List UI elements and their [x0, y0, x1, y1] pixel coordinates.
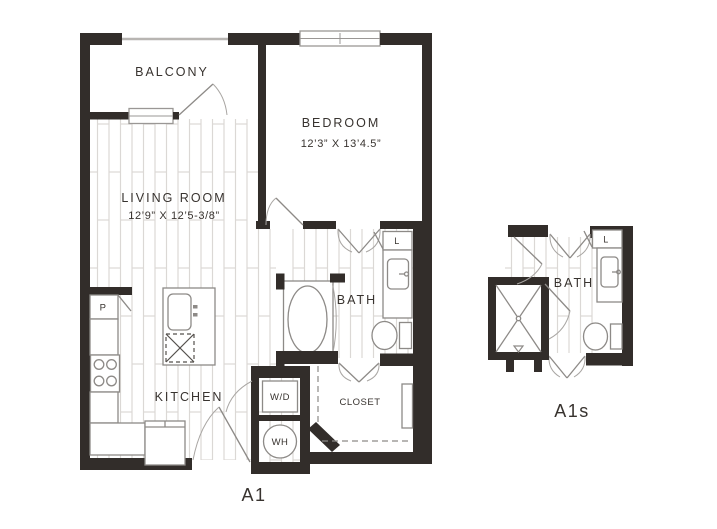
utility-left-wall	[251, 366, 259, 474]
living-room-label: LIVING ROOM	[121, 191, 226, 205]
linen-label: L	[394, 236, 400, 246]
island-faucet	[193, 305, 198, 309]
bedroom-divider-wall	[258, 43, 266, 229]
floor-plan-a1: BALCONY BEDROOM 12’3” X 13’4.5” LIVING R…	[80, 31, 432, 505]
bedroom-divider-end-cap	[256, 221, 270, 229]
small-bath-label: BATH	[554, 276, 594, 290]
kitchen-label: KITCHEN	[155, 390, 224, 404]
shower-drain	[516, 316, 520, 320]
closet-label: CLOSET	[339, 397, 380, 408]
toilet-tank	[400, 323, 412, 349]
bedroom-dimensions: 12’3” X 13’4.5”	[301, 138, 382, 150]
floor-plan-page: BALCONY BEDROOM 12’3” X 13’4.5” LIVING R…	[0, 0, 717, 529]
small-top-wall-left	[508, 225, 548, 237]
bath-wall-cap	[330, 274, 345, 283]
floor-plan-canvas: BALCONY BEDROOM 12’3” X 13’4.5” LIVING R…	[0, 0, 717, 529]
plan-name-a1s: A1s	[554, 401, 590, 421]
pantry-top-wall	[90, 287, 132, 295]
exterior-wall-left	[80, 33, 90, 470]
balcony-door-arc	[213, 84, 227, 115]
plan-name-a1: A1	[241, 485, 266, 505]
small-toilet	[584, 323, 623, 350]
pantry-label: P	[100, 303, 107, 314]
door-leaf	[567, 356, 585, 378]
shower-wall-stub	[506, 360, 514, 372]
door-leaf	[549, 356, 567, 378]
bedroom-wall-segment	[303, 221, 336, 229]
toilet-bowl	[372, 322, 397, 350]
closet-top-wall	[380, 354, 422, 367]
bedroom-label: BEDROOM	[302, 116, 381, 130]
door-leaf	[339, 363, 359, 382]
kitchen-island	[163, 288, 215, 365]
balcony-wall-segment	[90, 112, 129, 120]
utility-divider-wall	[259, 415, 300, 421]
floor-plan-a1s: BATH L A1s	[488, 225, 633, 421]
bath-sink	[388, 259, 409, 289]
bathtub	[284, 281, 337, 358]
exterior-wall-right-inner	[413, 228, 422, 464]
balcony-door-leaf	[179, 84, 213, 115]
small-bottom-door	[549, 356, 585, 378]
exterior-wall-bottom-right	[310, 452, 432, 464]
bedroom-door-leaf	[276, 198, 303, 225]
small-right-wall	[622, 226, 633, 366]
toilet-tank	[611, 324, 623, 349]
water-heater-label: WH	[272, 437, 289, 448]
island-sink	[168, 294, 191, 330]
exterior-wall-right	[422, 33, 432, 464]
island-faucet-handle	[193, 313, 198, 317]
balcony-wall-stub	[173, 112, 179, 120]
closet-angled-wall	[308, 422, 340, 452]
small-bottom-wall	[586, 353, 633, 366]
toilet-bowl	[584, 323, 608, 350]
washer-dryer-label: W/D	[270, 392, 290, 403]
bath-label: BATH	[337, 293, 377, 307]
kitchen-counter-upper	[90, 319, 118, 355]
bathtub-surround	[284, 281, 334, 358]
toilet	[372, 322, 412, 350]
balcony-label: BALCONY	[135, 65, 209, 79]
kitchen-counter-lower	[90, 392, 118, 423]
bath-bottom-wall	[278, 351, 338, 364]
bedroom-wall-segment-right	[380, 221, 422, 229]
shower-wall-stub	[534, 360, 542, 372]
door-leaf	[359, 363, 379, 382]
living-room-dimensions: 12’9” X 12’5-3/8”	[128, 210, 220, 222]
bath-wall-stub-top	[276, 274, 285, 290]
closet-door	[339, 363, 379, 382]
small-linen-label: L	[603, 235, 609, 245]
kitchen-counter-bottom	[90, 423, 145, 455]
bedroom-door-arc	[266, 198, 276, 225]
stove	[91, 355, 120, 392]
refrigerator	[145, 421, 185, 465]
utility-right-wall	[300, 366, 310, 466]
shower	[488, 277, 549, 372]
closet-shelf	[402, 384, 413, 428]
